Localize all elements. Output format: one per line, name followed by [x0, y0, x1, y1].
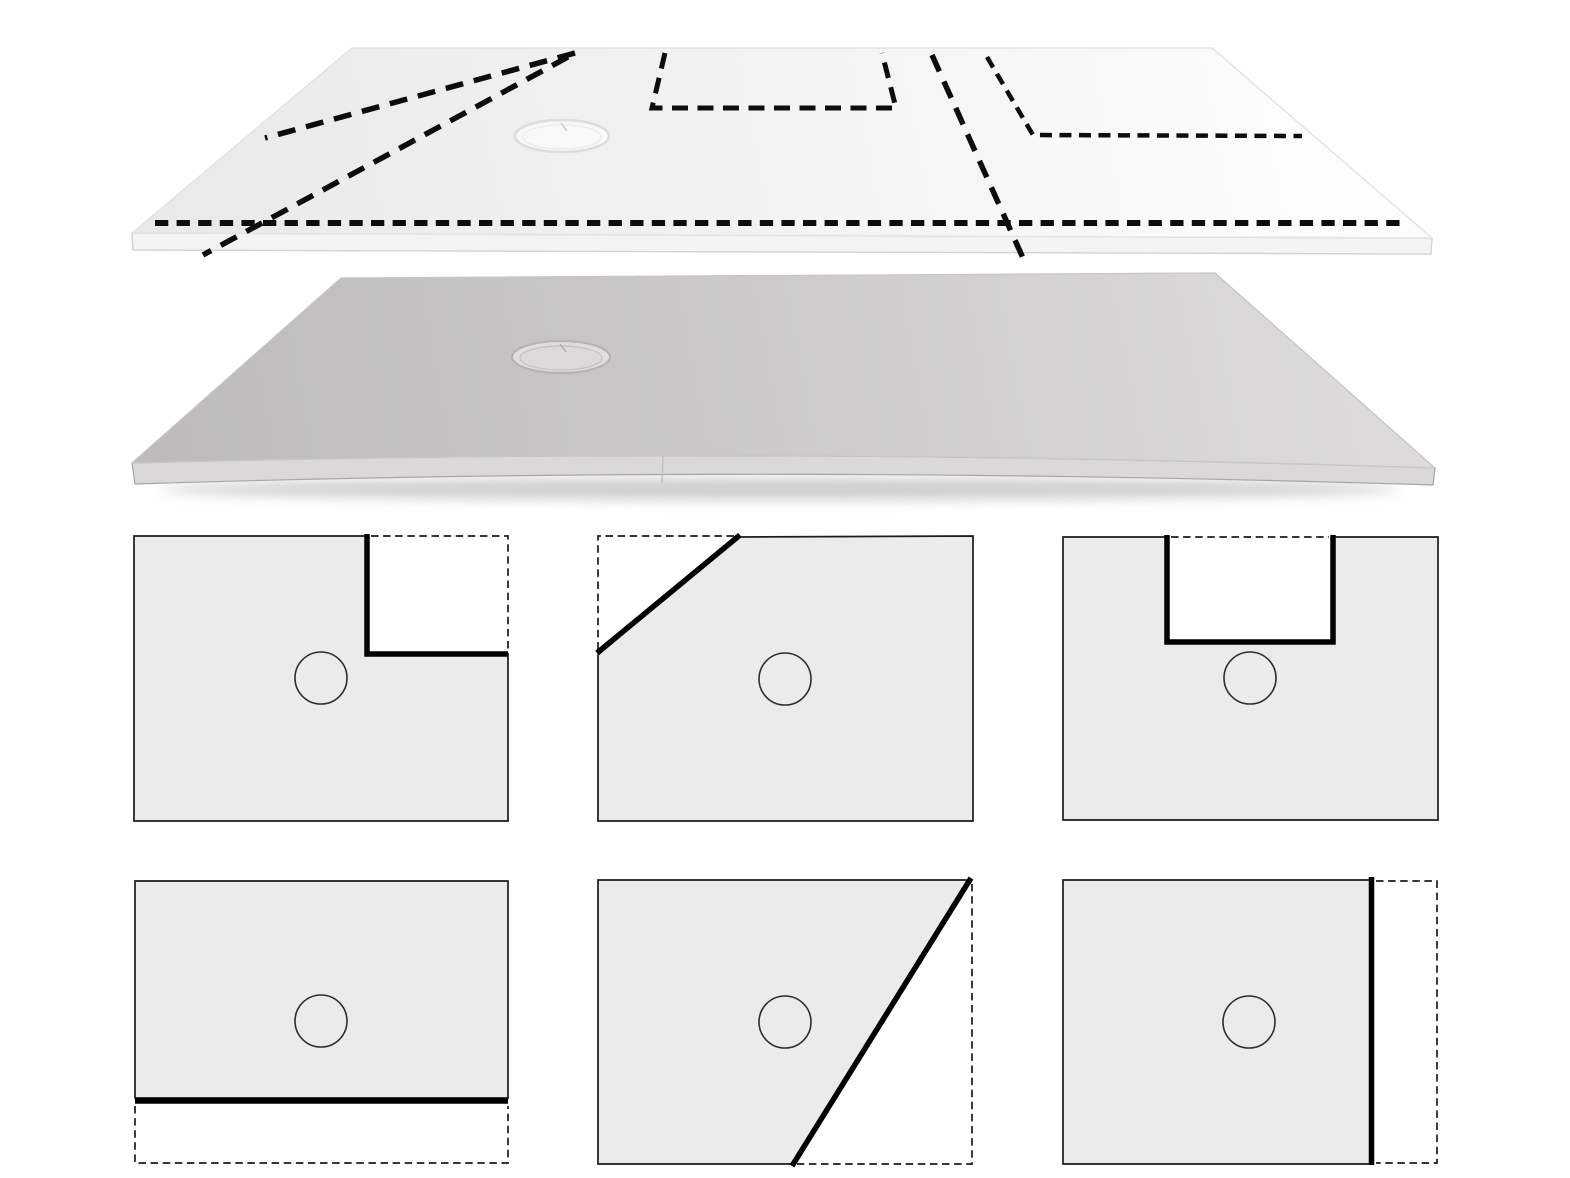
cut-edge-thick-line	[367, 534, 508, 654]
tray-face-seam	[662, 456, 663, 483]
tray-plan-shape	[134, 536, 508, 821]
drain-cap-inner	[520, 346, 602, 370]
cut-option-diagonal-top-left	[597, 535, 973, 821]
tray-plan-shape	[1063, 537, 1438, 820]
cut-edge-thick-line	[1167, 535, 1333, 642]
bottom-tray-plain	[132, 273, 1435, 500]
removed-part-dashed-outline	[135, 1106, 508, 1163]
cut-option-strip-bottom	[135, 881, 508, 1163]
cut-option-diagonal-bottom-right	[598, 878, 972, 1166]
shower-tray-cutting-guide	[0, 0, 1570, 1178]
scene-svg	[0, 0, 1570, 1178]
removed-part-dashed-outline	[1376, 881, 1437, 1163]
drain-cap	[512, 341, 610, 373]
cut-option-notch-top-right	[134, 534, 508, 821]
tray-drop-shadow	[160, 478, 1400, 500]
tray-plan-shape	[135, 881, 508, 1098]
tray-plan-shape	[598, 536, 973, 821]
tray-top-surface	[132, 273, 1435, 468]
removed-part-dashed-outline	[371, 536, 508, 651]
tray-plan-shape	[598, 880, 971, 1164]
cut-option-u-notch-top	[1063, 535, 1438, 820]
drain-cap-inner	[523, 125, 601, 149]
cut-option-strip-right	[1063, 877, 1437, 1165]
tray-plan-shape	[1063, 880, 1370, 1164]
tray-top-surface	[132, 48, 1432, 238]
drain-cap	[515, 120, 609, 152]
top-tray-with-cut-markings	[132, 48, 1432, 258]
